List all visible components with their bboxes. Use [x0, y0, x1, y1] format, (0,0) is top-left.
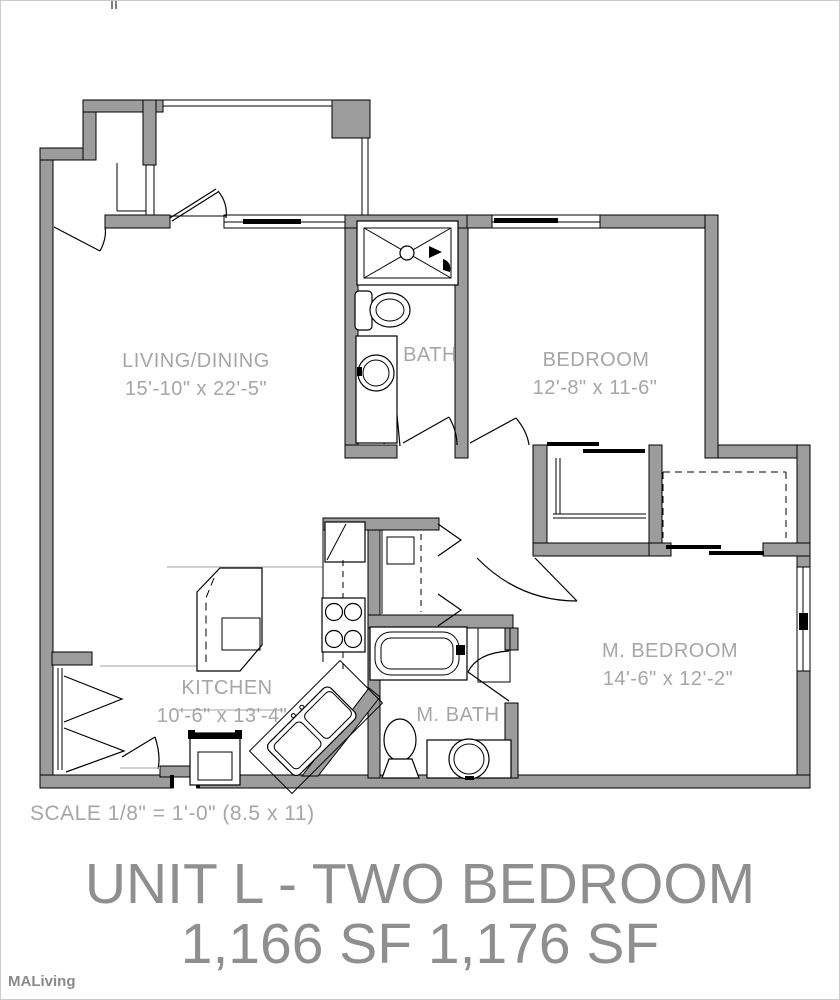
living-room-label: LIVING/DINING: [122, 350, 270, 372]
bedroom-dims: 12'-8" x 11-6": [533, 377, 658, 399]
living-room-dims: 15'-10" x 22'-5": [125, 378, 267, 400]
master-bedroom-door: [477, 558, 577, 601]
island-counter: [197, 568, 262, 671]
master-vanity-sink: [427, 739, 511, 780]
unit-square-footage: 1,166 SF 1,176 SF: [181, 912, 659, 976]
living-window: [224, 215, 345, 228]
entry-closet-bifold-doors: [58, 668, 159, 772]
hall-closet-shelves: [547, 442, 646, 518]
dishwasher: [188, 730, 242, 785]
stove: [322, 598, 365, 652]
master-bath-label: M. BATH: [416, 704, 499, 726]
entry-door: [54, 227, 105, 251]
scale-note: SCALE 1/8" = 1'-0" (8.5 x 11): [30, 802, 315, 825]
kitchen-label: KITCHEN: [181, 677, 272, 699]
master-bedroom-dims: 14'-6" x 12'-2": [603, 668, 734, 690]
bath-vanity-sink: [356, 336, 397, 443]
laundry-bifold-doors: [438, 524, 461, 626]
bath-label: BATH: [403, 344, 457, 366]
master-bath-door: [468, 651, 509, 701]
unit-title: UNIT L - TWO BEDROOM: [85, 852, 755, 916]
entry-closet-shelf: [117, 163, 146, 211]
kitchen-dims: 10'-6" x 13'-4": [157, 705, 288, 727]
laundry-closet-interior: [382, 530, 421, 614]
floorplan-sheet: LIVING/DINING 15'-10" x 22'-5" BATH BEDR…: [0, 0, 840, 1000]
watermark: MALiving: [8, 973, 76, 990]
bath-fixtures: [355, 221, 458, 443]
floorplan-drawing: LIVING/DINING 15'-10" x 22'-5" BATH BEDR…: [0, 0, 840, 1000]
refrigerator: [325, 522, 365, 562]
kitchen-fixtures: [100, 522, 382, 793]
master-bedroom-label: M. BEDROOM: [602, 640, 738, 662]
bedroom-label: BEDROOM: [543, 349, 650, 371]
page-border: [1, 1, 840, 1000]
shower: [357, 221, 458, 285]
bedroom-window: [492, 215, 600, 228]
master-toilet: [382, 719, 419, 778]
plot-tick: [112, 1, 116, 9]
bedroom-door: [470, 418, 529, 445]
bathtub: [370, 627, 467, 680]
toilet: [355, 291, 410, 330]
master-bedroom-window: [797, 567, 810, 671]
